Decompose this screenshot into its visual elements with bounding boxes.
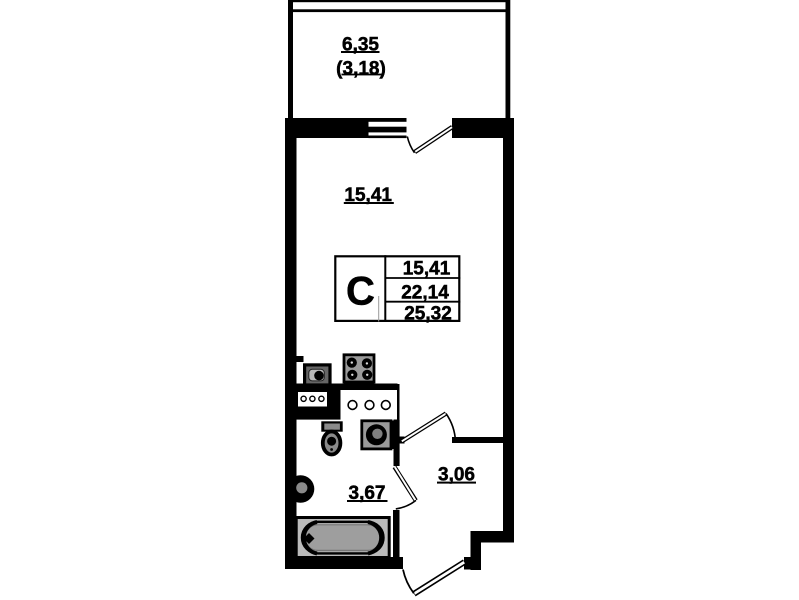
svg-text:С: С bbox=[346, 270, 375, 314]
svg-text:(3,18): (3,18) bbox=[336, 58, 386, 79]
svg-text:15,41: 15,41 bbox=[403, 259, 451, 280]
svg-text:25,32: 25,32 bbox=[404, 304, 452, 325]
svg-text:22,14: 22,14 bbox=[401, 283, 449, 304]
